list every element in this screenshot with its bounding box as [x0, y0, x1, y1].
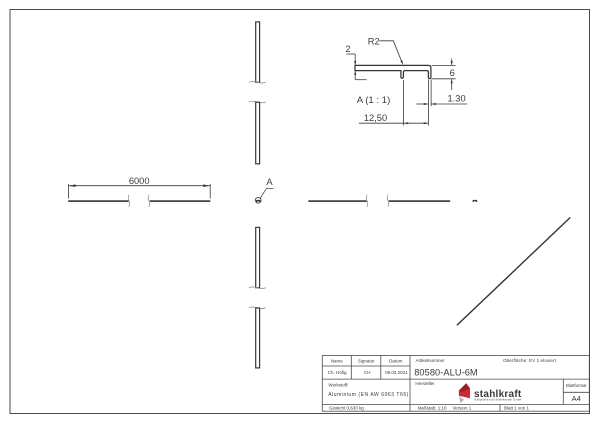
- svg-text:Hersteller: Hersteller: [415, 381, 435, 386]
- svg-text:A4: A4: [572, 394, 581, 403]
- svg-text:Oberfläche: EV 1 eloxiert: Oberfläche: EV 1 eloxiert: [503, 358, 557, 363]
- svg-text:1.30: 1.30: [448, 94, 466, 104]
- svg-text:Ch. Höfig: Ch. Höfig: [328, 370, 347, 375]
- svg-text:80580-ALU-6M: 80580-ALU-6M: [414, 368, 478, 378]
- svg-text:Blatt 1 von 1: Blatt 1 von 1: [504, 406, 530, 411]
- svg-text:Datum: Datum: [389, 358, 403, 363]
- svg-text:Aluminium (EN AW 6063 T66): Aluminium (EN AW 6063 T66): [328, 392, 409, 398]
- svg-text:Kaltprofile und Stahlhandel Gm: Kaltprofile und Stahlhandel GmbH: [475, 398, 522, 402]
- svg-text:6000: 6000: [129, 176, 150, 186]
- svg-text:Artikelnummer: Artikelnummer: [416, 358, 446, 363]
- svg-text:Name: Name: [331, 358, 344, 363]
- svg-text:A (1 : 1): A (1 : 1): [357, 95, 391, 106]
- svg-text:Maßstab: 1:10: Maßstab: 1:10: [418, 406, 447, 411]
- svg-text:Werkstoff:: Werkstoff:: [328, 383, 348, 388]
- svg-text:2: 2: [345, 44, 350, 54]
- svg-text:Signatur: Signatur: [358, 358, 375, 363]
- svg-text:Version 1: Version 1: [453, 406, 472, 411]
- svg-text:R2: R2: [368, 37, 380, 47]
- svg-text:CH: CH: [364, 370, 371, 375]
- svg-text:Gewicht 0,630 kg: Gewicht 0,630 kg: [329, 406, 364, 411]
- svg-text:09.03.2021: 09.03.2021: [385, 370, 408, 375]
- svg-text:Blattformat: Blattformat: [566, 383, 587, 388]
- svg-text:6: 6: [450, 68, 455, 78]
- svg-text:12,50: 12,50: [364, 113, 387, 123]
- svg-text:A: A: [266, 177, 273, 187]
